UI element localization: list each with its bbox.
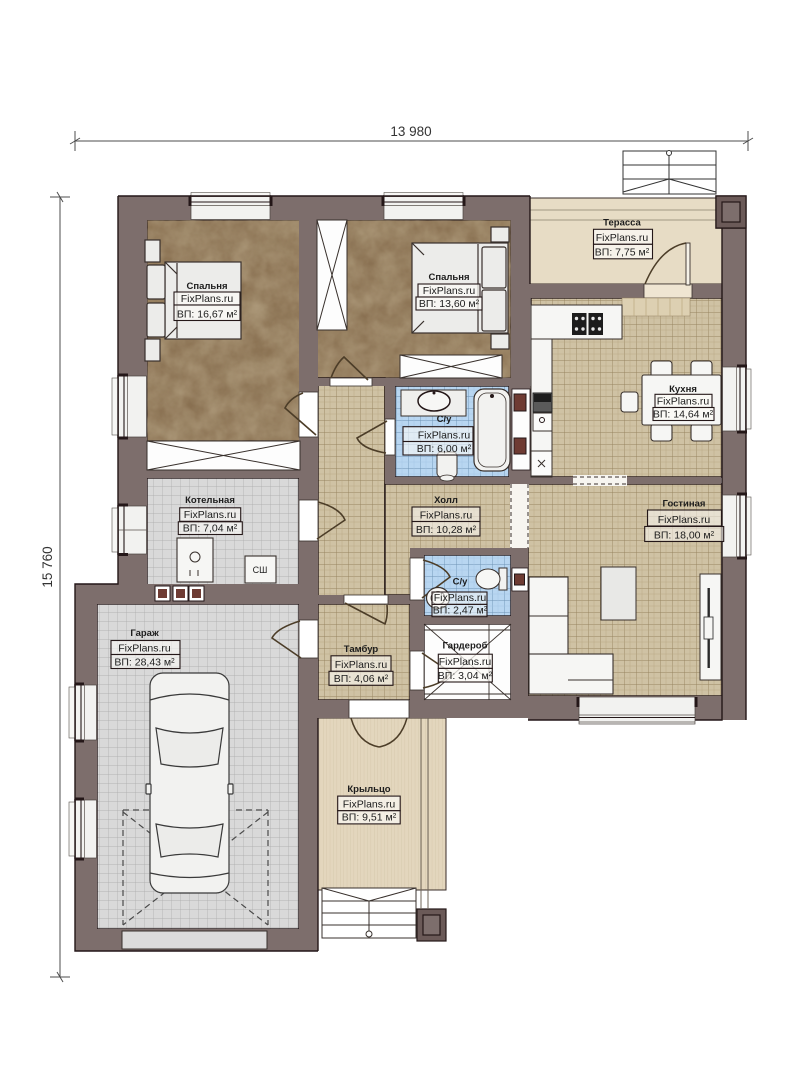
svg-text:Гараж: Гараж bbox=[130, 628, 159, 639]
svg-text:Кухня: Кухня bbox=[669, 384, 697, 395]
svg-text:FixPlans.ru: FixPlans.ru bbox=[184, 509, 237, 521]
svg-text:Спальня: Спальня bbox=[428, 272, 469, 283]
svg-text:ВП: 7,04 м²: ВП: 7,04 м² bbox=[183, 522, 238, 534]
svg-text:FixPlans.ru: FixPlans.ru bbox=[420, 509, 473, 521]
svg-text:13 980: 13 980 bbox=[390, 124, 431, 139]
svg-text:FixPlans.ru: FixPlans.ru bbox=[418, 429, 471, 441]
svg-text:ВП: 18,00 м²: ВП: 18,00 м² bbox=[654, 529, 715, 541]
svg-text:ВП: 9,51 м²: ВП: 9,51 м² bbox=[342, 812, 397, 824]
svg-text:FixPlans.ru: FixPlans.ru bbox=[181, 293, 234, 305]
svg-text:ВП: 14,64 м²: ВП: 14,64 м² bbox=[653, 408, 714, 420]
svg-text:FixPlans.ru: FixPlans.ru bbox=[439, 656, 492, 668]
svg-text:С/у: С/у bbox=[453, 577, 469, 588]
svg-text:С/у: С/у bbox=[437, 414, 453, 425]
svg-text:FixPlans.ru: FixPlans.ru bbox=[434, 592, 487, 604]
svg-text:ВП: 10,28 м²: ВП: 10,28 м² bbox=[416, 524, 477, 536]
svg-text:Спальня: Спальня bbox=[186, 281, 227, 292]
svg-text:Гардероб: Гардероб bbox=[443, 641, 488, 652]
svg-text:СШ: СШ bbox=[253, 565, 268, 575]
svg-text:ВП: 3,04 м²: ВП: 3,04 м² bbox=[438, 670, 493, 682]
svg-text:ВП: 28,43 м²: ВП: 28,43 м² bbox=[114, 656, 175, 668]
svg-text:FixPlans.ru: FixPlans.ru bbox=[118, 642, 171, 654]
svg-text:ВП: 6,00 м²: ВП: 6,00 м² bbox=[417, 443, 472, 455]
svg-text:ВП: 4,06 м²: ВП: 4,06 м² bbox=[334, 673, 389, 685]
svg-text:15 760: 15 760 bbox=[40, 546, 55, 587]
svg-text:ВП: 2,47 м²: ВП: 2,47 м² bbox=[433, 605, 488, 617]
svg-text:Терасса: Терасса bbox=[603, 218, 641, 229]
svg-text:ВП: 16,67 м²: ВП: 16,67 м² bbox=[177, 308, 238, 320]
svg-text:ВП: 7,75 м²: ВП: 7,75 м² bbox=[595, 247, 650, 259]
svg-text:Крыльцо: Крыльцо bbox=[347, 784, 390, 795]
svg-text:Тамбур: Тамбур bbox=[344, 644, 379, 655]
svg-text:Котельная: Котельная bbox=[185, 495, 235, 506]
svg-text:Холл: Холл bbox=[434, 495, 458, 506]
svg-text:ВП: 13,60 м²: ВП: 13,60 м² bbox=[419, 298, 480, 310]
svg-text:FixPlans.ru: FixPlans.ru bbox=[657, 395, 710, 407]
svg-text:FixPlans.ru: FixPlans.ru bbox=[596, 232, 649, 244]
svg-text:FixPlans.ru: FixPlans.ru bbox=[343, 799, 396, 811]
svg-text:FixPlans.ru: FixPlans.ru bbox=[658, 514, 711, 526]
svg-text:FixPlans.ru: FixPlans.ru bbox=[423, 285, 476, 297]
svg-text:Гостиная: Гостиная bbox=[663, 499, 706, 510]
svg-text:FixPlans.ru: FixPlans.ru bbox=[335, 659, 388, 671]
